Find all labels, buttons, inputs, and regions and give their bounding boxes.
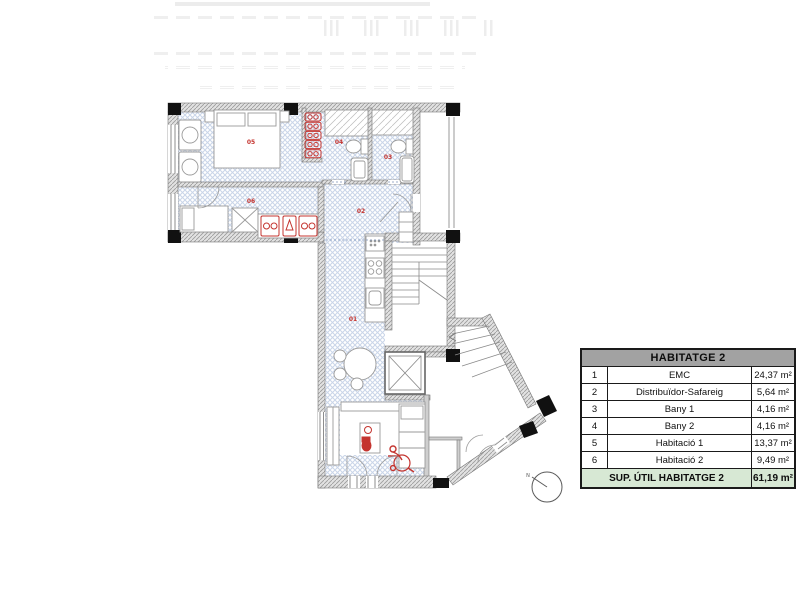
row-name: Distribuïdor-Safareig [608, 384, 752, 400]
room-label-06: 06 [247, 198, 255, 205]
row-name: Bany 2 [608, 418, 752, 434]
elevator-shaft [385, 352, 425, 394]
area-table: HABITATGE 2 1 EMC 24,37 m² 2 Distribuïdo… [580, 348, 796, 489]
row-area: 9,49 m² [752, 452, 794, 468]
room-label-02: 02 [357, 208, 365, 215]
table-row: 4 Bany 2 4,16 m² [582, 418, 794, 435]
ghost-upper-floor [150, 2, 495, 89]
plan-sheet: 01 02 03 04 05 06 N HABITATGE 2 1 EMC 24… [0, 0, 800, 600]
table-footer: SUP. ÚTIL HABITATGE 2 61,19 m² [582, 469, 794, 487]
area-table-title: HABITATGE 2 [582, 350, 794, 367]
row-area: 13,37 m² [752, 435, 794, 451]
row-number: 1 [582, 367, 608, 383]
table-row: 1 EMC 24,37 m² [582, 367, 794, 384]
north-arrow: N [526, 472, 562, 502]
row-name: Bany 1 [608, 401, 752, 417]
row-number: 2 [582, 384, 608, 400]
row-number: 4 [582, 418, 608, 434]
table-row: 5 Habitació 1 13,37 m² [582, 435, 794, 452]
row-name: Habitació 1 [608, 435, 752, 451]
room-label-05: 05 [247, 139, 255, 146]
room-label-01: 01 [349, 316, 357, 323]
footer-value: 61,19 m² [752, 469, 794, 487]
kitchen-furniture [365, 234, 385, 322]
main-staircase [392, 248, 447, 304]
row-name: EMC [608, 367, 752, 383]
row-number: 5 [582, 435, 608, 451]
row-number: 3 [582, 401, 608, 417]
table-row: 2 Distribuïdor-Safareig 5,64 m² [582, 384, 794, 401]
table-row: 3 Bany 1 4,16 m² [582, 401, 794, 418]
row-number: 6 [582, 452, 608, 468]
floor-plan-drawing: 01 02 03 04 05 06 N [0, 0, 800, 600]
footer-label: SUP. ÚTIL HABITATGE 2 [582, 469, 752, 487]
row-area: 5,64 m² [752, 384, 794, 400]
table-row: 6 Habitació 2 9,49 m² [582, 452, 794, 469]
row-area: 24,37 m² [752, 367, 794, 383]
room-label-04: 04 [335, 139, 343, 146]
room-label-03: 03 [384, 154, 392, 161]
row-area: 4,16 m² [752, 401, 794, 417]
row-name: Habitació 2 [608, 452, 752, 468]
north-label: N [526, 473, 530, 479]
row-area: 4,16 m² [752, 418, 794, 434]
